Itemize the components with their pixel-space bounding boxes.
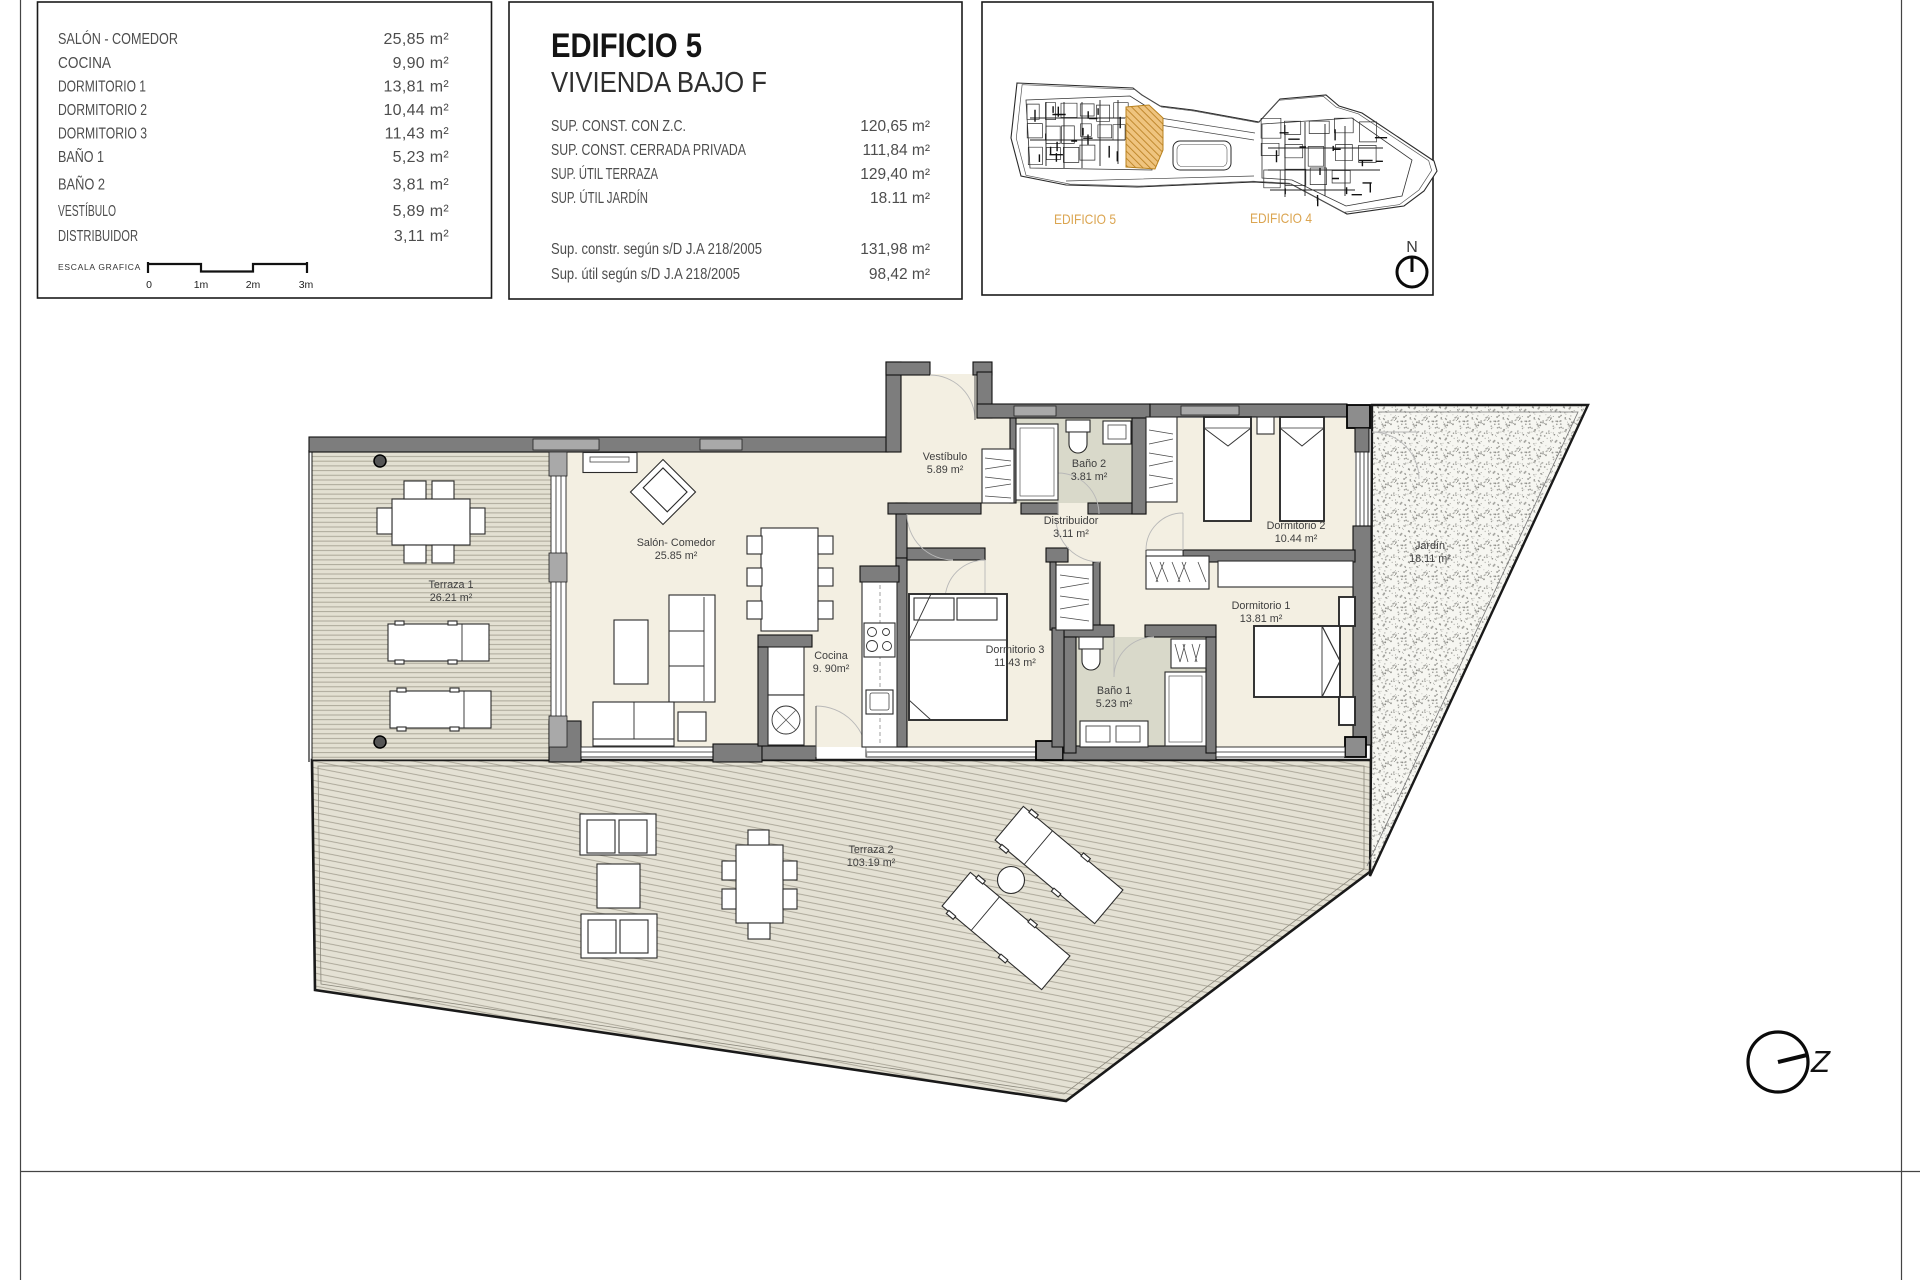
svg-text:SUP. CONST. CERRADA PRIVADA: SUP. CONST. CERRADA PRIVADA bbox=[551, 142, 747, 159]
svg-text:11.43 m²: 11.43 m² bbox=[994, 657, 1036, 669]
svg-text:ESCALA GRAFICA: ESCALA GRAFICA bbox=[58, 262, 141, 272]
svg-text:5.89 m²: 5.89 m² bbox=[927, 464, 964, 476]
svg-text:VIVIENDA BAJO F: VIVIENDA BAJO F bbox=[551, 67, 767, 99]
svg-text:3.11 m²: 3.11 m² bbox=[1053, 528, 1089, 540]
svg-text:DORMITORIO 2: DORMITORIO 2 bbox=[58, 102, 147, 119]
svg-text:1m: 1m bbox=[194, 279, 209, 291]
svg-text:26.21 m²: 26.21 m² bbox=[430, 592, 473, 604]
svg-text:Baño 2: Baño 2 bbox=[1072, 458, 1106, 470]
svg-text:Vestíbulo: Vestíbulo bbox=[923, 451, 967, 463]
svg-text:N: N bbox=[1406, 239, 1418, 256]
svg-text:Distribuidor: Distribuidor bbox=[1044, 515, 1099, 527]
svg-text:103.19 m²: 103.19 m² bbox=[847, 857, 896, 869]
svg-text:18.11 m²: 18.11 m² bbox=[1409, 553, 1451, 565]
svg-text:18.11 m²: 18.11 m² bbox=[870, 190, 930, 207]
svg-text:Dormitorio 2: Dormitorio 2 bbox=[1267, 520, 1326, 532]
svg-text:5,89 m²: 5,89 m² bbox=[393, 203, 450, 220]
svg-text:DORMITORIO 3: DORMITORIO 3 bbox=[58, 126, 147, 143]
svg-text:Terraza 1: Terraza 1 bbox=[428, 579, 473, 591]
svg-text:VESTÍBULO: VESTÍBULO bbox=[58, 201, 116, 220]
svg-text:9. 90m²: 9. 90m² bbox=[813, 663, 850, 675]
svg-text:98,42 m²: 98,42 m² bbox=[869, 266, 930, 283]
svg-text:3,11 m²: 3,11 m² bbox=[394, 228, 450, 245]
svg-text:Sup. constr. según s/D J.A 218: Sup. constr. según s/D J.A 218/2005 bbox=[551, 241, 762, 258]
svg-text:10,44 m²: 10,44 m² bbox=[383, 102, 449, 119]
svg-text:COCINA: COCINA bbox=[58, 55, 111, 72]
svg-text:BAÑO 1: BAÑO 1 bbox=[58, 146, 104, 166]
svg-text:Dormitorio 1: Dormitorio 1 bbox=[1232, 600, 1291, 612]
svg-text:10.44 m²: 10.44 m² bbox=[1275, 533, 1318, 545]
svg-text:111,84 m²: 111,84 m² bbox=[863, 142, 931, 159]
svg-text:9,90 m²: 9,90 m² bbox=[393, 55, 450, 72]
svg-text:120,65 m²: 120,65 m² bbox=[860, 118, 930, 135]
svg-text:11,43 m²: 11,43 m² bbox=[385, 126, 450, 143]
svg-text:3,81 m²: 3,81 m² bbox=[393, 177, 450, 194]
svg-text:SUP. ÚTIL TERRAZA: SUP. ÚTIL TERRAZA bbox=[551, 166, 658, 183]
svg-text:3m: 3m bbox=[299, 279, 314, 291]
svg-text:2m: 2m bbox=[246, 279, 261, 291]
svg-text:5,23 m²: 5,23 m² bbox=[393, 149, 450, 166]
svg-text:SALÓN - COMEDOR: SALÓN - COMEDOR bbox=[58, 29, 178, 48]
svg-text:25.85 m²: 25.85 m² bbox=[655, 550, 698, 562]
svg-text:SUP. ÚTIL JARDÍN: SUP. ÚTIL JARDÍN bbox=[551, 190, 648, 207]
svg-text:DISTRIBUIDOR: DISTRIBUIDOR bbox=[58, 228, 138, 245]
svg-text:DORMITORIO 1: DORMITORIO 1 bbox=[58, 79, 146, 96]
svg-text:13.81 m²: 13.81 m² bbox=[1240, 613, 1283, 625]
svg-text:Terraza 2: Terraza 2 bbox=[848, 844, 893, 856]
svg-text:3.81 m²: 3.81 m² bbox=[1071, 471, 1108, 483]
svg-text:Cocina: Cocina bbox=[814, 650, 848, 662]
svg-text:129,40 m²: 129,40 m² bbox=[860, 166, 930, 183]
svg-text:Dormitorio 3: Dormitorio 3 bbox=[986, 644, 1045, 656]
svg-text:BAÑO 2: BAÑO 2 bbox=[58, 174, 105, 194]
svg-text:Salón- Comedor: Salón- Comedor bbox=[637, 537, 716, 549]
svg-text:25,85 m²: 25,85 m² bbox=[383, 31, 449, 48]
svg-text:EDIFICIO 5: EDIFICIO 5 bbox=[1054, 211, 1116, 227]
svg-text:SUP. CONST. CON Z.C.: SUP. CONST. CON Z.C. bbox=[551, 118, 686, 135]
svg-text:Z: Z bbox=[1810, 1044, 1831, 1079]
svg-text:Jardín: Jardín bbox=[1415, 540, 1445, 552]
svg-text:131,98 m²: 131,98 m² bbox=[860, 241, 930, 258]
svg-text:0: 0 bbox=[146, 279, 152, 291]
svg-text:Baño 1: Baño 1 bbox=[1097, 685, 1131, 697]
svg-text:EDIFICIO 5: EDIFICIO 5 bbox=[551, 27, 702, 65]
svg-text:13,81 m²: 13,81 m² bbox=[383, 79, 449, 96]
svg-text:5.23 m²: 5.23 m² bbox=[1096, 698, 1133, 710]
svg-text:EDIFICIO 4: EDIFICIO 4 bbox=[1250, 210, 1312, 226]
svg-text:Sup. útil según s/D J.A 218/20: Sup. útil según s/D J.A 218/2005 bbox=[551, 266, 740, 283]
